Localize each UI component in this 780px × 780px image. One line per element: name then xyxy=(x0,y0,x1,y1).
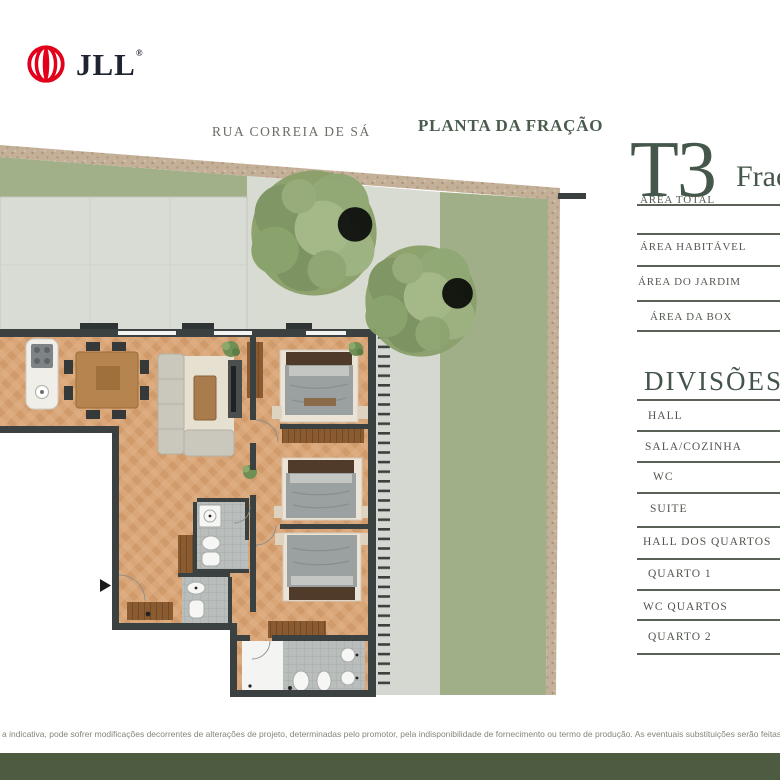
street-label: RUA CORREIA DE SÁ xyxy=(212,124,371,140)
page-title: PLANTA DA FRAÇÃO xyxy=(418,116,603,136)
divider xyxy=(637,430,780,432)
divider xyxy=(637,526,780,528)
jll-emblem-icon xyxy=(24,42,68,86)
division-hall-quartos: HALL DOS QUARTOS xyxy=(643,536,771,548)
division-quarto1: QUARTO 1 xyxy=(648,568,712,580)
windows xyxy=(118,331,346,335)
shower xyxy=(242,641,283,693)
footer-bar xyxy=(0,753,780,780)
divider xyxy=(637,300,780,302)
fraction-label: Fraç xyxy=(736,160,780,194)
divider xyxy=(637,461,780,463)
living-area xyxy=(158,354,242,456)
bed-suite xyxy=(272,350,368,422)
divider xyxy=(637,558,780,560)
divisions-title: DIVISÕES xyxy=(644,366,780,397)
floor-plan xyxy=(0,140,612,706)
division-wc-quartos: WC QUARTOS xyxy=(643,601,728,613)
disclaimer-text: a indicativa, pode sofrer modificações d… xyxy=(0,729,780,739)
registered-mark: ® xyxy=(136,48,144,58)
division-wc: WC xyxy=(653,471,674,483)
page: JLL® RUA CORREIA DE SÁ PLANTA DA FRAÇÃO xyxy=(0,0,780,780)
jll-logo: JLL® xyxy=(24,42,144,86)
divider xyxy=(637,204,780,206)
divider xyxy=(637,653,780,655)
area-box-label: ÁREA DA BOX xyxy=(650,311,732,323)
cabinet xyxy=(127,602,173,620)
divider xyxy=(637,619,780,621)
division-suite: SUITE xyxy=(650,503,688,515)
kitchen-island xyxy=(26,339,58,409)
divider xyxy=(637,589,780,591)
area-jardim-label: ÁREA DO JARDIM xyxy=(638,276,741,288)
gate-marker xyxy=(558,193,586,199)
house xyxy=(0,323,390,697)
divider xyxy=(637,265,780,267)
jll-wordmark: JLL® xyxy=(76,49,144,80)
division-hall: HALL xyxy=(648,410,683,422)
facade-hatching xyxy=(377,337,390,689)
dining-table xyxy=(64,342,149,419)
entrance-arrow-icon xyxy=(100,579,111,592)
divider xyxy=(637,492,780,494)
divider xyxy=(637,399,780,401)
divider xyxy=(637,330,780,332)
bed-quarto1 xyxy=(274,458,370,520)
divider xyxy=(637,233,780,235)
bed-quarto2 xyxy=(275,533,370,601)
division-quarto2: QUARTO 2 xyxy=(648,631,712,643)
area-habitavel-label: ÁREA HABITÁVEL xyxy=(640,241,746,253)
division-sala-cozinha: SALA/COZINHA xyxy=(645,441,742,453)
